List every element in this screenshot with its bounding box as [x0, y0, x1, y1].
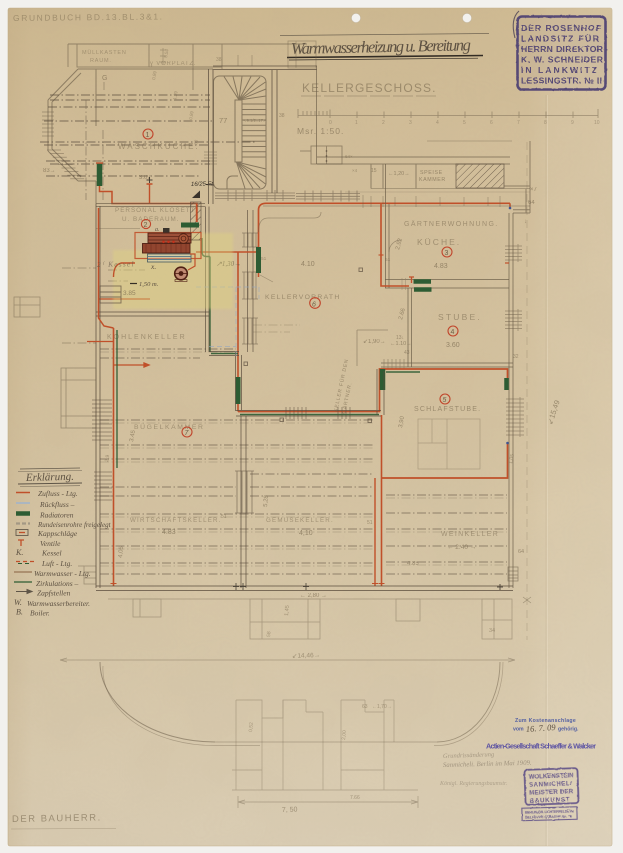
svg-text:W.: W.: [14, 598, 22, 607]
svg-text:KELLERVORRATH: KELLERVORRATH: [265, 294, 341, 301]
svg-text:2⁽ Kessel: 2⁽ Kessel: [97, 259, 135, 269]
svg-text:KÜCHE.: KÜCHE.: [417, 237, 461, 247]
svg-text:4.85: 4.85: [407, 561, 419, 567]
svg-text:BAUKUNST: BAUKUNST: [529, 796, 569, 804]
svg-text:Erklärung.: Erklärung.: [25, 471, 74, 484]
svg-text:Warmwasserheizung u. Bereitung: Warmwasserheizung u. Bereitung: [291, 35, 471, 58]
svg-text:←1,20→: ←1,20→: [388, 171, 410, 177]
svg-text:gehörig.: gehörig.: [558, 727, 579, 733]
svg-text:3.60: 3.60: [446, 342, 460, 349]
svg-text:4: 4: [436, 120, 439, 126]
svg-text:38: 38: [216, 57, 222, 63]
svg-text:63: 63: [362, 704, 368, 710]
svg-text:Actien-Gesellschaft Schaeffer: Actien-Gesellschaft Schaeffer & Walcker: [486, 742, 596, 751]
svg-text:KOHLENKELLER: KOHLENKELLER: [107, 334, 187, 341]
svg-text:Msr. 1:50.: Msr. 1:50.: [297, 126, 344, 136]
svg-text:HERRN DIREKTOR: HERRN DIREKTOR: [521, 44, 604, 54]
svg-text:GRUNDBUCH BD.13.BL.3&1.: GRUNDBUCH BD.13.BL.3&1.: [13, 11, 164, 23]
svg-text:51: 51: [261, 256, 267, 262]
svg-text:Kessel: Kessel: [41, 549, 62, 558]
svg-text:a.: a.: [155, 227, 160, 233]
svg-text:2: 2: [382, 120, 385, 126]
svg-text:MÜLLKASTEN: MÜLLKASTEN: [82, 49, 127, 56]
svg-text:G: G: [102, 75, 107, 82]
svg-text:1,45: 1,45: [284, 605, 291, 616]
svg-text:83→: 83→: [43, 168, 56, 174]
svg-text:4.83: 4.83: [162, 529, 176, 536]
svg-text:DER BAUHERR.: DER BAUHERR.: [12, 812, 102, 825]
svg-text:3: 3: [445, 250, 449, 257]
svg-text:GÄRTNERWOHNUNG.: GÄRTNERWOHNUNG.: [404, 220, 499, 228]
svg-text:×4: ×4: [352, 168, 358, 173]
svg-text:WIRTSCHAFTSKELLER.: WIRTSCHAFTSKELLER.: [130, 517, 222, 524]
svg-text:← 2.40 →: ← 2.40 →: [447, 544, 476, 551]
svg-text:4.10: 4.10: [301, 261, 315, 268]
svg-text:WASCHKÜCHE.: WASCHKÜCHE.: [118, 142, 200, 151]
svg-text:0,52: 0,52: [248, 722, 255, 732]
svg-text:7: 7: [517, 120, 520, 126]
svg-text:7, 50: 7, 50: [282, 806, 298, 814]
svg-text:Zirkulations –: Zirkulations –: [36, 579, 79, 588]
svg-text:ɣ VORPLATZ.: ɣ VORPLATZ.: [150, 61, 196, 67]
svg-text:15: 15: [371, 168, 377, 174]
svg-text:9: 9: [571, 120, 574, 126]
svg-text:16. 7. 09: 16. 7. 09: [525, 722, 556, 734]
svg-text:LESSINGSTR. № II: LESSINGSTR. № II: [521, 76, 602, 86]
svg-text:PERSONAL KLOSETT: PERSONAL KLOSETT: [115, 207, 196, 214]
svg-text:5: 5: [463, 120, 466, 126]
svg-text:×7: ×7: [530, 187, 538, 193]
svg-text:Warmwasserbereiter.: Warmwasserbereiter.: [27, 599, 90, 608]
svg-text:51: 51: [385, 257, 391, 263]
svg-text:Zufluss - Ltg.: Zufluss - Ltg.: [38, 489, 78, 498]
svg-text:STUBE.: STUBE.: [438, 312, 482, 322]
svg-text:51: 51: [367, 520, 373, 526]
svg-text:5,28: 5,28: [263, 494, 270, 507]
svg-text:SCHLAFSTUBE.: SCHLAFSTUBE.: [414, 406, 481, 413]
svg-text:43: 43: [404, 350, 410, 356]
svg-text:Ventile: Ventile: [40, 539, 61, 548]
svg-text:Warmwasser - Ltg.: Warmwasser - Ltg.: [34, 569, 91, 578]
svg-text:K. W. SCHNEIDER: K. W. SCHNEIDER: [521, 55, 604, 65]
svg-text:←1,70→: ←1,70→: [372, 704, 392, 710]
svg-text:↙14,46→: ↙14,46→: [292, 652, 320, 660]
svg-text:RAUM.: RAUM.: [90, 58, 112, 64]
svg-text:KELLERGESCHOSS.: KELLERGESCHOSS.: [302, 81, 438, 95]
svg-text:7.66: 7.66: [350, 795, 360, 801]
svg-text:1,50 m.: 1,50 m.: [139, 281, 159, 288]
svg-text:↓: ↓: [524, 219, 527, 225]
svg-text:vom: vom: [513, 727, 524, 733]
svg-text:38: 38: [279, 113, 285, 119]
svg-text:4.83: 4.83: [434, 263, 448, 270]
svg-text:34: 34: [489, 628, 495, 634]
svg-text:6: 6: [312, 302, 316, 309]
svg-text:K.: K.: [15, 548, 23, 557]
svg-text:3.85: 3.85: [123, 290, 136, 297]
svg-text:77: 77: [219, 116, 227, 125]
svg-text:64: 64: [518, 549, 524, 555]
svg-text:Luft - Ltg.: Luft - Ltg.: [41, 559, 72, 568]
svg-text:4: 4: [451, 329, 455, 336]
svg-text:13↓: 13↓: [396, 335, 404, 341]
svg-text:2,9: 2,9: [104, 454, 111, 462]
svg-text:32: 32: [513, 354, 519, 360]
svg-text:SPEISE: SPEISE: [420, 170, 443, 176]
svg-text:DER ROSENHOF: DER ROSENHOF: [521, 23, 601, 33]
svg-text:1: 1: [146, 132, 150, 139]
svg-text:64×: 64×: [345, 154, 353, 159]
svg-text:Radiatoren: Radiatoren: [39, 511, 74, 520]
svg-text:B.: B.: [16, 608, 23, 617]
svg-text:8: 8: [544, 120, 547, 126]
svg-text:↙1,90→: ↙1,90→: [363, 339, 386, 345]
svg-text:1: 1: [355, 120, 358, 126]
svg-text:x.: x.: [150, 262, 156, 271]
svg-text:3: 3: [409, 120, 412, 126]
svg-text:58: 58: [266, 631, 272, 637]
svg-text:U. BADERAUM.: U. BADERAUM.: [122, 216, 179, 223]
svg-text:Kappschläge: Kappschläge: [37, 529, 78, 538]
svg-text:Zapfstellen: Zapfstellen: [37, 589, 71, 598]
svg-text:10: 10: [594, 120, 600, 126]
svg-text:↖9:1/2=17↗: ↖9:1/2=17↗: [243, 118, 266, 123]
svg-text:←1.10→: ←1.10→: [390, 341, 412, 347]
svg-text:Rundeisenrohre freigelegt: Rundeisenrohre freigelegt: [37, 521, 112, 529]
svg-text:BÜGELKAMMER: BÜGELKAMMER: [134, 423, 204, 431]
svg-text:2,00: 2,00: [341, 730, 348, 740]
svg-text:51: 51: [221, 514, 227, 520]
svg-text:4,05: 4,05: [118, 545, 125, 558]
svg-text:Königl. Regierungsbaumstr.: Königl. Regierungsbaumstr.: [439, 781, 507, 787]
svg-text:KAMMER: KAMMER: [419, 177, 446, 183]
svg-text:← 2,80 →: ← 2,80 →: [300, 593, 327, 599]
svg-text:64: 64: [528, 200, 535, 206]
svg-text:GEMÜSEKELLER.: GEMÜSEKELLER.: [266, 517, 334, 524]
svg-text:5: 5: [443, 397, 447, 404]
svg-text:6: 6: [490, 120, 493, 126]
svg-text:Boiler.: Boiler.: [30, 609, 50, 618]
svg-text:4,10: 4,10: [299, 530, 313, 537]
svg-text:2: 2: [144, 222, 148, 229]
svg-text:Rückfluss –: Rückfluss –: [39, 500, 75, 509]
